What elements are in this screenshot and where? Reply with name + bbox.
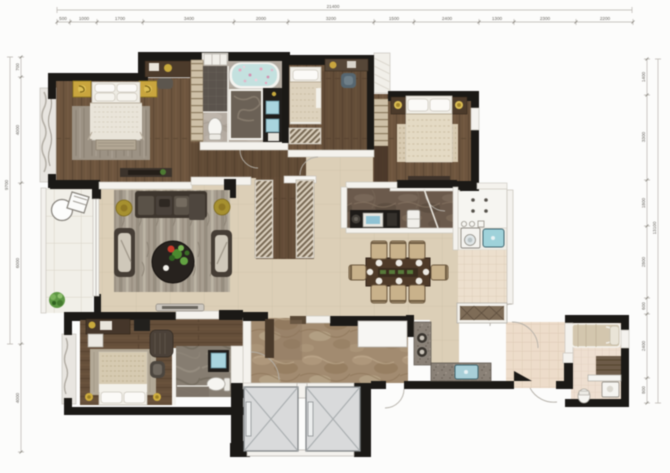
svg-text:1500: 1500 — [389, 16, 400, 21]
svg-text:2400: 2400 — [442, 16, 453, 21]
svg-text:1300: 1300 — [492, 16, 503, 21]
svg-text:3400: 3400 — [184, 16, 195, 21]
svg-text:9700: 9700 — [4, 179, 9, 190]
svg-text:2300: 2300 — [540, 16, 551, 21]
svg-text:1800: 1800 — [641, 197, 646, 208]
svg-text:500: 500 — [59, 16, 67, 21]
svg-text:600: 600 — [641, 302, 646, 310]
svg-text:2800: 2800 — [641, 256, 646, 267]
svg-text:1000: 1000 — [79, 16, 90, 21]
svg-text:13100: 13100 — [652, 221, 657, 234]
svg-text:2000: 2000 — [256, 16, 267, 21]
svg-text:2200: 2200 — [600, 16, 611, 21]
svg-text:1700: 1700 — [115, 16, 126, 21]
svg-text:3300: 3300 — [641, 131, 646, 142]
svg-text:1400: 1400 — [641, 71, 646, 82]
svg-text:6000: 6000 — [15, 257, 20, 268]
svg-text:4000: 4000 — [15, 124, 20, 135]
svg-text:3200: 3200 — [326, 16, 337, 21]
svg-text:2400: 2400 — [641, 340, 646, 351]
svg-text:4000: 4000 — [15, 392, 20, 403]
svg-text:21400: 21400 — [327, 4, 340, 9]
svg-text:700: 700 — [15, 63, 20, 71]
svg-text:800: 800 — [641, 386, 646, 394]
